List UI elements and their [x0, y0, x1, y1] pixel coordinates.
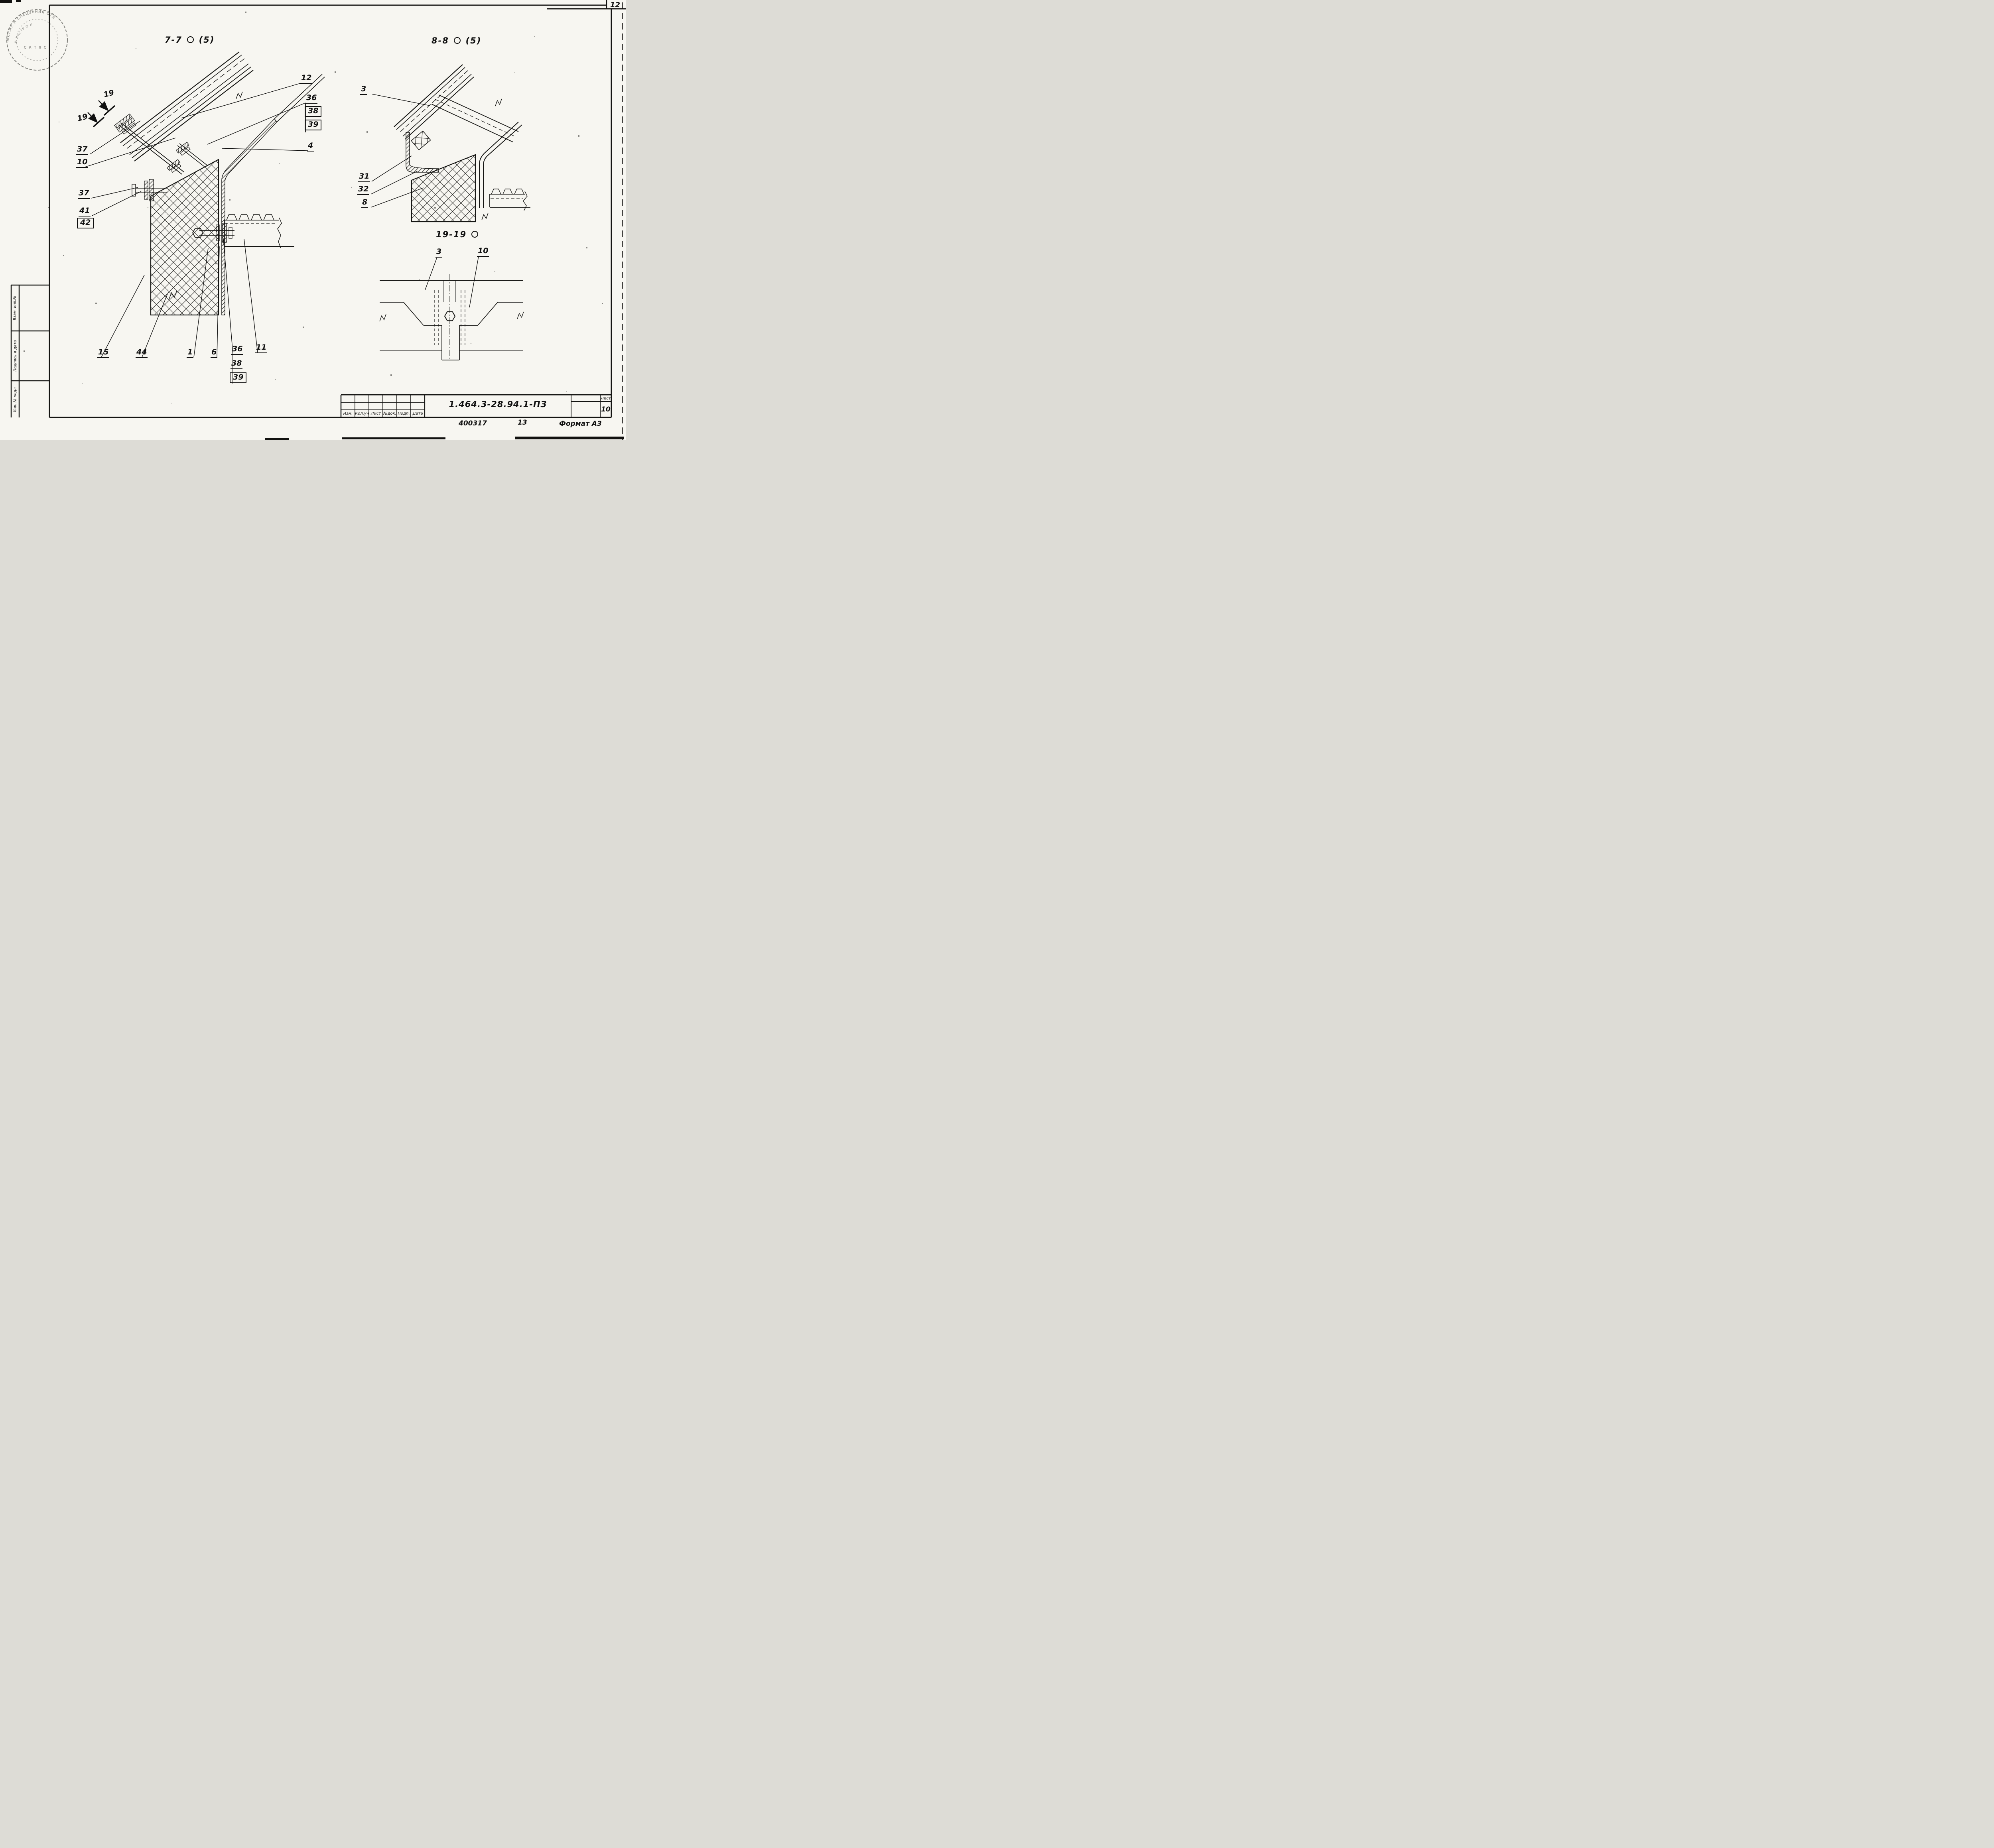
callout-44: 44: [136, 348, 148, 358]
view-circle-icon: [471, 231, 478, 238]
callout-11: 11: [255, 344, 267, 353]
section-title-7-7: 7-7 (5): [165, 35, 215, 45]
detail-7-7-linework: [114, 52, 325, 384]
drawing-linework: ЖСКИХ И СПЕЦЗАНИЯ ОТД Й ИНСТР О К С К Т …: [0, 0, 626, 440]
titleblock-header-ndok: №док.: [383, 410, 397, 417]
sheet-number: 10: [600, 402, 611, 417]
titleblock-header-podp: Подп.: [397, 410, 411, 417]
callout-42: 42: [77, 218, 94, 228]
section-19-19-name: 19-19: [436, 230, 467, 239]
callout-39: 39: [305, 120, 321, 130]
callout-37: 37: [76, 146, 88, 155]
callout-15: 15: [97, 348, 109, 358]
titleblock-header-data: Дата: [411, 410, 425, 417]
cut-marker-arrows: [88, 100, 115, 127]
callout-37: 37: [78, 189, 90, 199]
callout-6: 6: [211, 348, 217, 358]
callout-4: 4: [307, 142, 314, 152]
titleblock-header-list: Лист: [369, 410, 383, 417]
view-circle-icon: [187, 36, 194, 43]
view-circle-icon: [454, 37, 461, 44]
stamp-graphic: ЖСКИХ И СПЕЦЗАНИЯ ОТД Й ИНСТР О К С К Т …: [6, 10, 67, 70]
section-8-8-scale: (5): [466, 36, 482, 45]
sheet-label: Лист: [600, 395, 611, 401]
sidebar-label: Инв. № подл.: [13, 386, 18, 412]
callout-38: 38: [231, 360, 242, 369]
detail-8-8-linework: [394, 65, 530, 222]
section-8-8-name: 8-8: [432, 36, 449, 45]
sidebar-cell-vzam-inv: Взам. инв.№: [11, 285, 19, 331]
callout-3: 3: [435, 248, 442, 258]
titleblock-header-izm: Изм.: [341, 410, 355, 417]
detail-19-19-linework: [380, 274, 524, 360]
callout-32: 32: [357, 185, 369, 195]
corner-sheet-number: 12: [610, 1, 620, 9]
callout-12: 12: [300, 74, 312, 84]
callout-31: 31: [358, 173, 370, 182]
sidebar-label: Взам. инв.№: [13, 296, 18, 320]
callout-10: 10: [76, 158, 88, 168]
section-title-19-19: 19-19: [436, 230, 479, 239]
section-7-7-scale: (5): [199, 35, 215, 45]
callout-3: 3: [360, 85, 367, 95]
callout-39: 39: [230, 372, 246, 383]
titleblock-header-koluch: Кол.уч: [355, 410, 369, 417]
sheet-frame: [11, 0, 626, 440]
sidebar-cell-podpis-data: Подпись и дата: [11, 331, 19, 381]
sidebar-cell-inv-podl: Инв. № подл.: [11, 381, 19, 417]
callout-10: 10: [477, 247, 489, 257]
callout-38: 38: [305, 106, 321, 117]
callout-8: 8: [361, 199, 368, 208]
scan-noise-dots: [0, 0, 1, 1]
document-number: 1.464.3-28.94.1-ПЗ: [425, 396, 571, 413]
callout-41: 41: [79, 207, 91, 216]
callout-1: 1: [187, 348, 193, 358]
footer-format-note: Формат А3: [559, 420, 602, 428]
callout-36: 36: [231, 345, 243, 355]
stamp-line-text: С К Т Я С: [24, 46, 47, 50]
scanned-drawing-sheet: ЖСКИХ И СПЕЦЗАНИЯ ОТД Й ИНСТР О К С К Т …: [0, 0, 626, 440]
footer-adjacent-sheet: 13: [518, 419, 527, 427]
section-title-8-8: 8-8 (5): [432, 36, 481, 45]
footer-order-number: 400317: [459, 419, 487, 427]
sidebar-label: Подпись и дата: [13, 340, 18, 372]
callout-36: 36: [305, 94, 317, 104]
section-7-7-name: 7-7: [165, 35, 182, 45]
